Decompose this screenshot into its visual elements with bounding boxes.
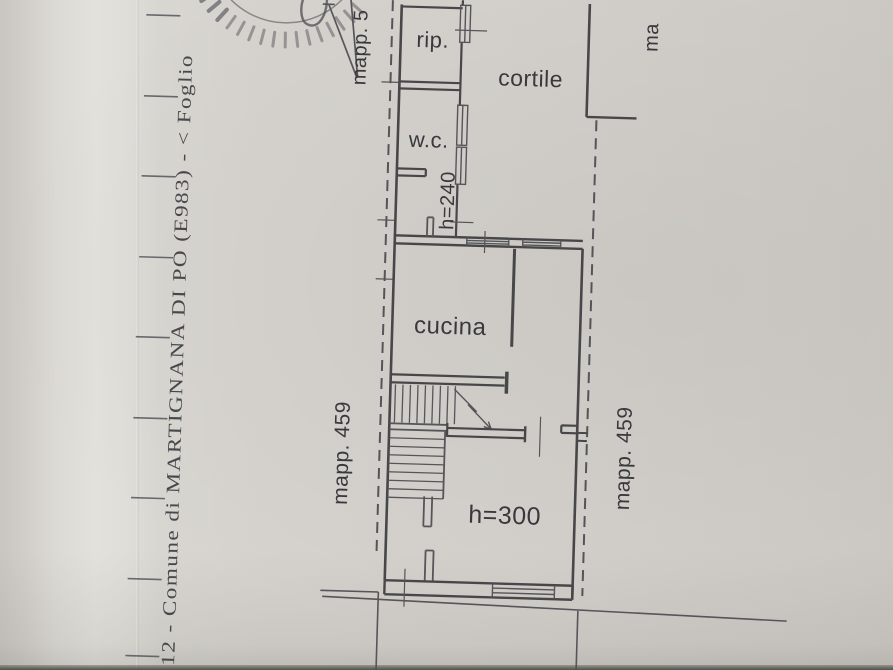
staircase [387,384,492,500]
margin-caption: 12 - Comune di MARTIGNANA DI PO (E983) -… [158,54,197,666]
height-label-240: h=240 [436,171,460,230]
door-jamb-kitchen [506,372,507,394]
room-label-cucina: cucina [414,312,487,341]
window-service-column [455,5,470,184]
boundary-dashed-left [376,0,392,554]
wall-flue-pier [425,550,434,581]
label-mapp-top-right: ma [640,22,663,52]
scanned-floorplan-photo: 12 - Comune di MARTIGNANA DI PO (E983) -… [0,0,893,670]
wall-partition [512,249,515,347]
height-label-300: h=300 [468,501,542,531]
room-label-wc: w.c. [407,127,449,153]
room-label-rip: rip. [416,27,449,53]
wall-boundary-stub [577,433,587,441]
stairs-upper-treads [394,384,455,424]
door-jamb-upper [427,217,434,236]
wall-kitchen-top [395,235,583,249]
wall-neighbour-top [587,117,637,118]
label-mapp-459-left: mapp. 459 [329,401,355,505]
stairs-lower-treads [387,438,445,499]
boundary-dashed-right [582,120,596,596]
stamp-lettering-heavy [201,0,228,20]
wall-kitchen-bottom [391,374,505,385]
stairs-ascent-arrows [453,389,492,429]
cadastral-stamp [200,0,363,49]
photo-bottom-edge [0,665,893,670]
label-mapp-459-right: mapp. 459 [611,406,637,510]
floor-plan-drawing: 12 - Comune di MARTIGNANA DI PO (E983) -… [0,0,893,670]
stairs-rails [387,423,447,499]
wall-understair-pier [423,496,432,526]
wall-hall [447,422,577,440]
site-lines [318,590,787,670]
label-mapp-5: mapp. 5 [348,9,372,85]
room-label-cortile: cortile [498,64,564,92]
